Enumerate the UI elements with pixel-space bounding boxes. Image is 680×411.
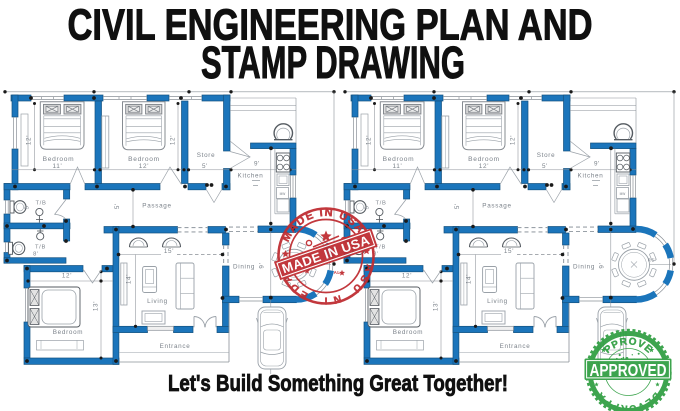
svg-text:O: O	[628, 402, 637, 411]
svg-text:APPROVED: APPROVED	[590, 360, 667, 380]
svg-text:STAMP DRAWING: STAMP DRAWING	[201, 37, 465, 88]
svg-text:I: I	[324, 295, 327, 307]
svg-text:Let's Build Something Great To: Let's Build Something Great Together!	[168, 370, 508, 396]
svg-text:AL: AL	[334, 270, 341, 275]
